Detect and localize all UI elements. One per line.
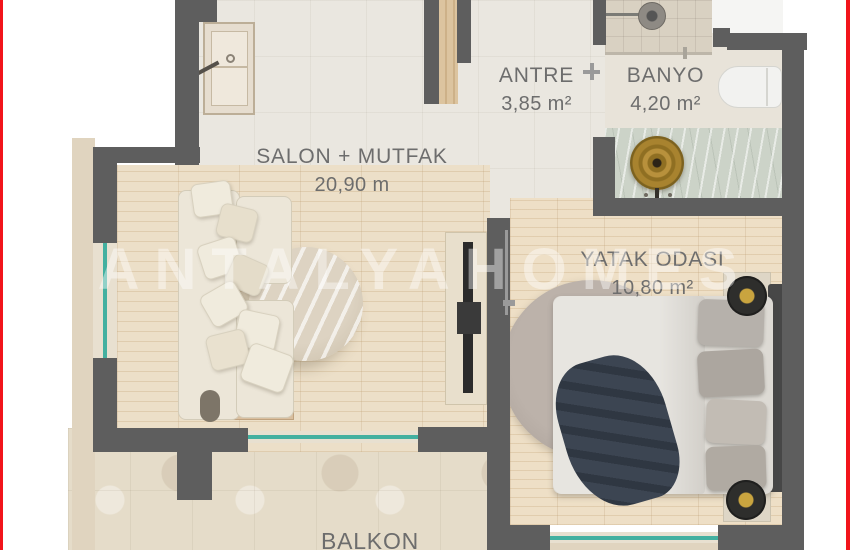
sofa-roll-cushion (200, 390, 220, 422)
wall-antre-left (424, 0, 439, 104)
room-name: BANYO (608, 61, 723, 90)
shower-arm (605, 13, 641, 16)
balcony-door-glass (248, 435, 418, 439)
wall-antre-left-inner (457, 0, 471, 63)
balcony-side-strip (72, 138, 95, 550)
room-label-banyo: BANYO 4,20 m² (608, 61, 723, 119)
left-red-border (0, 0, 3, 550)
bedroom-window-glass (550, 536, 718, 540)
bed-pillow (705, 398, 767, 445)
room-label-balcony: BALKON (300, 527, 440, 550)
tv-mount-box (457, 302, 481, 334)
watermark-text: ANTALYAHOMES (0, 238, 850, 302)
right-red-border (846, 0, 850, 550)
shower-glass-line (605, 52, 712, 55)
wall-salon-bottom-left (95, 428, 248, 452)
toilet-tank-line (766, 68, 768, 106)
wall-balcony-pier (177, 452, 212, 500)
room-label-salon: SALON + MUTFAK 20,90 m (232, 142, 472, 200)
toilet (718, 66, 782, 108)
room-name: SALON + MUTFAK (232, 142, 472, 171)
room-name: BALKON (300, 527, 440, 550)
sink-tap-right (668, 193, 672, 197)
wall-bathroom-bottom (593, 198, 783, 216)
room-area: 20,90 m (232, 171, 472, 200)
sink-tap-left (644, 193, 648, 197)
nightstand-lamp-bottom (726, 480, 766, 520)
wall-bedroom-bottom-left (487, 525, 550, 550)
room-area: 3,85 m² (479, 90, 594, 119)
bed-pillow (697, 348, 765, 397)
kitchen-sink-basin (211, 31, 248, 106)
wall-left-upper-vertical (175, 0, 199, 165)
room-label-antre: ANTRE 3,85 m² (479, 61, 594, 119)
kitchen-drain-icon (226, 54, 235, 63)
gold-sink-basin (630, 136, 684, 190)
shower-glass-handle (683, 47, 687, 59)
shower-head-icon (638, 2, 666, 30)
antre-wardrobe (439, 0, 458, 104)
room-area: 4,20 m² (608, 90, 723, 119)
wall-bathroom-corner-stub (713, 28, 730, 47)
wall-bathroom-top-right (727, 33, 807, 50)
wall-left-window-upper (93, 147, 117, 243)
room-name: ANTRE (479, 61, 594, 90)
kitchen-sink-divider (211, 66, 248, 68)
floor-plan-image: SALON + MUTFAK 20,90 m ANTRE 3,85 m² BAN… (0, 0, 850, 550)
wall-antre-banyo-upper (593, 0, 606, 45)
